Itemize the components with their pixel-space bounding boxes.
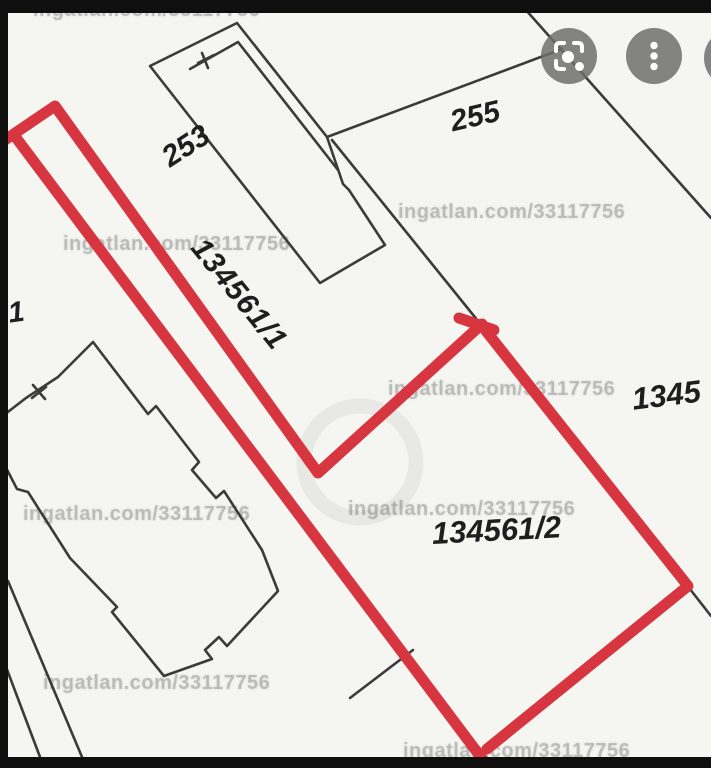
cadastral-map-canvas[interactable] bbox=[0, 0, 711, 768]
highlighted-parcel-outline bbox=[2, 106, 688, 768]
watermark-ring bbox=[304, 406, 416, 518]
scan-viewfinder-icon bbox=[551, 38, 587, 74]
map-photo-viewer: ingatlan.com/33117756 ingatlan.com/33117… bbox=[0, 0, 711, 768]
scan-button[interactable] bbox=[541, 28, 597, 84]
letterbox-top-bar bbox=[0, 0, 711, 13]
kebab-menu-icon bbox=[636, 38, 672, 74]
letterbox-left-strip bbox=[0, 0, 8, 768]
parcel-label-134561-2: 134561/2 bbox=[431, 509, 562, 552]
letterbox-bottom-bar bbox=[0, 757, 711, 768]
more-options-button[interactable] bbox=[626, 28, 682, 84]
boundary-lines bbox=[0, 0, 711, 757]
